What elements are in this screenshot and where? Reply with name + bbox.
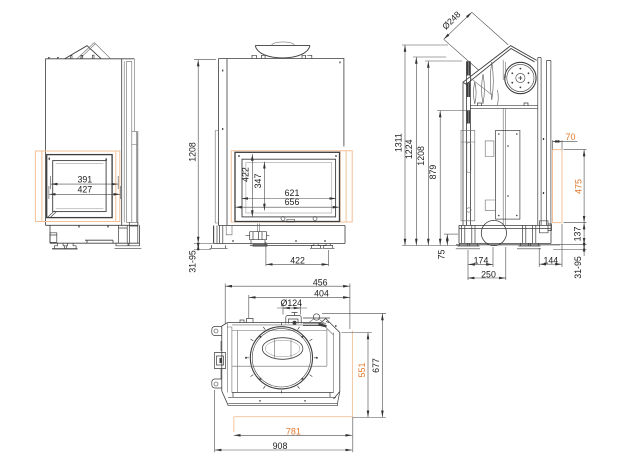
svg-text:144: 144 xyxy=(543,256,558,266)
svg-text:656: 656 xyxy=(285,197,300,207)
svg-text:422: 422 xyxy=(290,256,305,266)
svg-text:70: 70 xyxy=(565,132,575,142)
svg-text:908: 908 xyxy=(273,441,288,451)
svg-text:879: 879 xyxy=(428,165,438,180)
svg-text:1208: 1208 xyxy=(188,142,198,162)
svg-text:31-95: 31-95 xyxy=(573,256,583,279)
svg-text:1208: 1208 xyxy=(416,146,426,166)
svg-text:391: 391 xyxy=(77,174,92,184)
svg-text:427: 427 xyxy=(77,185,92,195)
svg-text:347: 347 xyxy=(253,174,263,189)
svg-text:1311: 1311 xyxy=(393,133,403,152)
svg-text:781: 781 xyxy=(286,427,301,437)
svg-text:Ø124: Ø124 xyxy=(281,298,303,308)
svg-text:75: 75 xyxy=(437,250,447,260)
svg-text:250: 250 xyxy=(481,269,496,279)
svg-text:456: 456 xyxy=(313,277,328,287)
svg-text:Ø248: Ø248 xyxy=(440,9,462,31)
svg-text:677: 677 xyxy=(371,358,381,373)
svg-text:31-95: 31-95 xyxy=(188,250,198,273)
svg-text:475: 475 xyxy=(573,179,583,194)
svg-text:174: 174 xyxy=(474,256,489,266)
svg-text:1224: 1224 xyxy=(404,139,414,159)
svg-text:137: 137 xyxy=(573,227,583,242)
svg-text:422: 422 xyxy=(241,167,251,182)
svg-text:404: 404 xyxy=(314,288,329,298)
svg-text:551: 551 xyxy=(357,362,367,377)
